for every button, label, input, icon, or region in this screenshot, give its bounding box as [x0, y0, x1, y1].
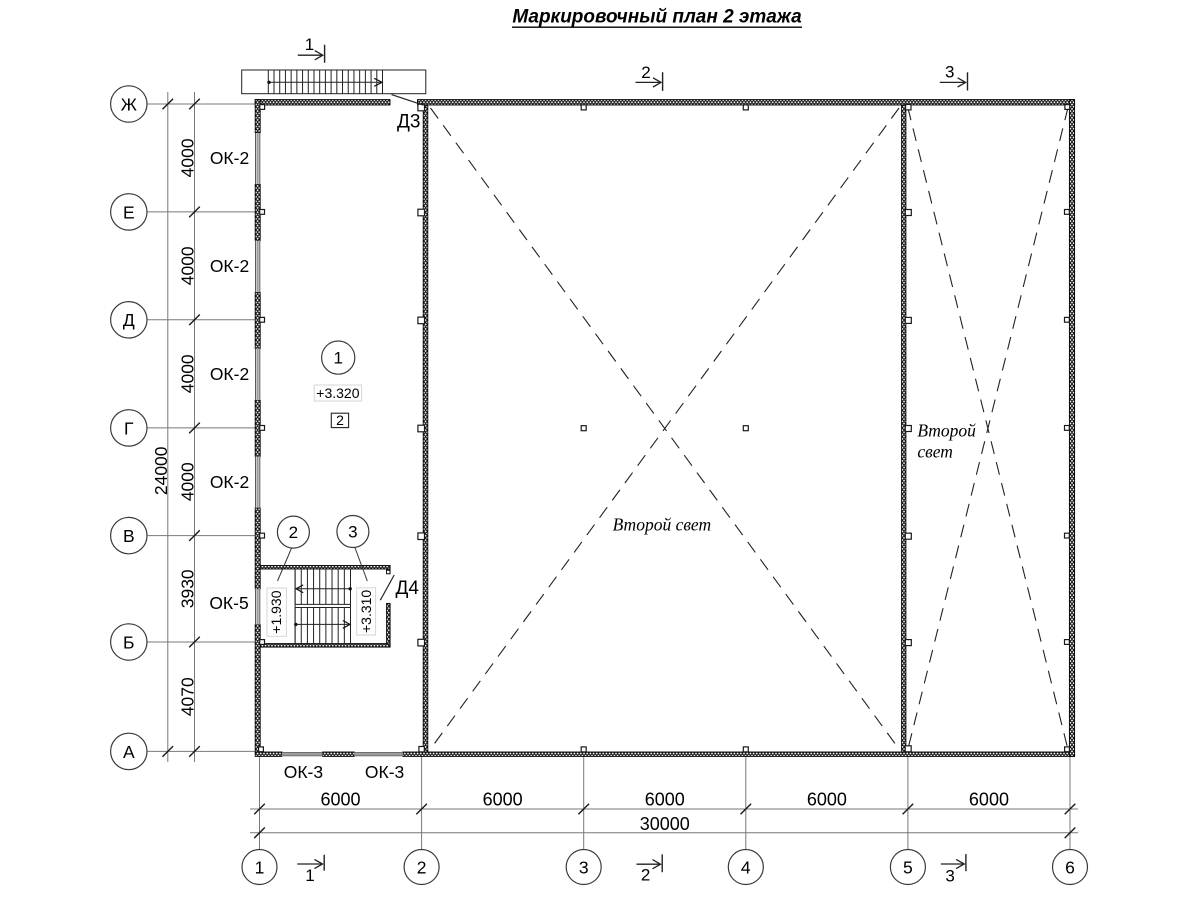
- svg-text:1: 1: [305, 35, 314, 54]
- svg-text:3: 3: [348, 523, 357, 542]
- svg-text:1: 1: [305, 866, 314, 885]
- svg-text:4000: 4000: [178, 138, 198, 177]
- svg-text:+1.930: +1.930: [268, 590, 284, 633]
- svg-text:ОК-2: ОК-2: [210, 148, 249, 168]
- svg-text:А: А: [123, 742, 135, 762]
- svg-text:Б: Б: [123, 632, 134, 652]
- svg-text:Г: Г: [124, 418, 134, 438]
- svg-text:6: 6: [1065, 857, 1075, 877]
- svg-text:3: 3: [945, 62, 954, 81]
- svg-text:ОК-2: ОК-2: [210, 364, 249, 384]
- svg-text:6000: 6000: [969, 790, 1009, 810]
- svg-text:+3.310: +3.310: [358, 590, 374, 633]
- svg-text:4000: 4000: [178, 462, 198, 501]
- svg-text:ОК-2: ОК-2: [210, 472, 249, 492]
- svg-text:4070: 4070: [178, 677, 198, 716]
- svg-text:Д4: Д4: [396, 578, 420, 599]
- svg-text:Д3: Д3: [397, 112, 420, 133]
- svg-text:ОК-5: ОК-5: [209, 593, 248, 613]
- svg-text:2: 2: [289, 523, 298, 542]
- svg-text:3930: 3930: [178, 569, 198, 608]
- svg-text:4000: 4000: [178, 246, 198, 285]
- svg-text:1: 1: [333, 349, 342, 368]
- svg-text:Второй: Второй: [917, 421, 976, 441]
- svg-text:3: 3: [945, 866, 954, 885]
- svg-text:Маркировочный план 2 этажа: Маркировочный план 2 этажа: [512, 7, 802, 28]
- svg-text:30000: 30000: [640, 814, 690, 834]
- svg-text:2: 2: [641, 866, 650, 885]
- svg-text:24000: 24000: [151, 446, 171, 495]
- svg-text:6000: 6000: [483, 790, 523, 810]
- svg-text:В: В: [123, 526, 135, 546]
- svg-text:свет: свет: [917, 442, 953, 462]
- svg-text:5: 5: [903, 857, 913, 877]
- svg-text:3: 3: [579, 857, 589, 877]
- svg-text:ОК-3: ОК-3: [365, 762, 404, 782]
- svg-text:6000: 6000: [807, 790, 847, 810]
- svg-text:Ж: Ж: [121, 94, 137, 114]
- svg-text:Е: Е: [123, 202, 135, 222]
- svg-text:ОК-3: ОК-3: [284, 762, 323, 782]
- svg-text:Д: Д: [123, 310, 135, 330]
- svg-text:ОК-2: ОК-2: [210, 256, 249, 276]
- svg-text:6000: 6000: [321, 790, 361, 810]
- svg-text:6000: 6000: [645, 790, 685, 810]
- svg-text:1: 1: [255, 857, 265, 877]
- svg-text:Второй свет: Второй свет: [613, 515, 711, 535]
- svg-text:2: 2: [641, 63, 650, 82]
- svg-text:2: 2: [417, 857, 427, 877]
- svg-text:4000: 4000: [178, 354, 198, 393]
- svg-text:+3.320: +3.320: [316, 385, 359, 401]
- svg-text:4: 4: [741, 857, 751, 877]
- svg-text:2: 2: [336, 412, 344, 428]
